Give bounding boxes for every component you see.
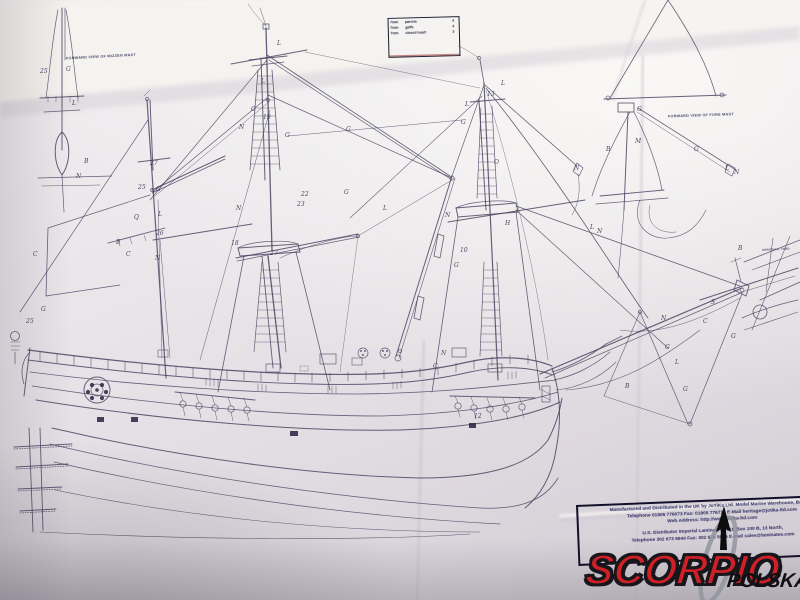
rigging-label: G [454,262,459,269]
rigging-label: 19 [263,114,271,121]
rigging-label: N [76,173,81,180]
rigging-label: G [637,106,642,113]
rigging-label: G [346,126,351,133]
rigging-label: C [33,251,38,258]
rigging-label: L [725,165,729,172]
rigging-label: 22 [301,191,309,198]
rigging-label: 27 [150,160,158,167]
legend-table-body: 7mm parrels 4 7mm gaffs 4 7mm closed hea… [389,17,461,37]
rigging-label: C [703,318,708,325]
legend-qty: 3 [446,29,454,35]
rigging-label: N [155,255,160,262]
rigging-label: G [344,189,349,196]
rigging-label: B [84,158,88,165]
rigging-label: L [675,359,679,366]
legend-row: 7mm closed heart 3 [390,29,459,36]
rigging-label: 25 [138,184,146,191]
rigging-label: G [665,344,670,351]
rigging-label: N [574,165,579,172]
rigging-label: G [41,306,46,313]
rigging-label: B [625,383,629,390]
rigging-label: 27 [270,250,278,257]
rigging-label: L [383,205,387,212]
photographed-plan-sheet: 25GLBNG252725GLQ26BCNCLLG19GGN2223GN1827… [0,0,800,600]
rigging-label: C [126,251,131,258]
legend-size: 7mm [390,30,405,36]
rigging-label: 18 [231,240,239,247]
scorpio-arrow-icon [716,506,731,550]
rigging-label: L [158,211,162,218]
rigging-label: Q [134,214,139,221]
rigging-label: 10 [460,247,468,254]
rigging-label: H [505,220,510,227]
rigging-label: 26 [156,230,164,237]
rigging-label: G [731,333,736,340]
rigging-label: G [461,119,466,126]
legend-table: 7mm parrels 4 7mm gaffs 4 7mm closed hea… [387,16,460,58]
rigging-label: G [156,186,161,193]
rigging-label: G [285,132,290,139]
rigging-label: L [590,224,594,231]
rigging-label: G [694,146,699,153]
rigging-label: B [116,239,120,246]
rigging-label: G [66,66,71,73]
rigging-label: G [683,386,688,393]
rigging-label: 25 [40,68,48,75]
rigging-label: N [236,205,241,212]
rigging-label: L [72,100,76,107]
legend-item: closed heart [405,29,446,36]
rigging-label: G [251,106,256,113]
rigging-label: L [261,78,265,85]
rigging-label: N [445,212,450,219]
rigging-label: C [433,363,438,370]
rigging-label: M [635,138,641,145]
rigging-label: B [738,245,742,252]
rigging-label: B [606,146,610,153]
watermark-region: POLSKA [726,570,800,593]
rigging-label: N [597,228,602,235]
rigging-label: N [441,350,446,357]
rigging-label: 12 [474,413,482,420]
rigging-label: L [465,101,469,108]
rigging-label: O [494,159,499,166]
rigging-label: 13 [487,91,495,98]
rigging-label: L [501,80,505,87]
rigging-label: N [734,169,739,176]
rigging-label: L [277,40,281,47]
rigging-label: 25 [26,318,34,325]
rigging-label: 23 [297,201,305,208]
rigging-label: S [711,299,715,306]
rigging-label: N [239,124,244,131]
rigging-label: N [661,315,666,322]
